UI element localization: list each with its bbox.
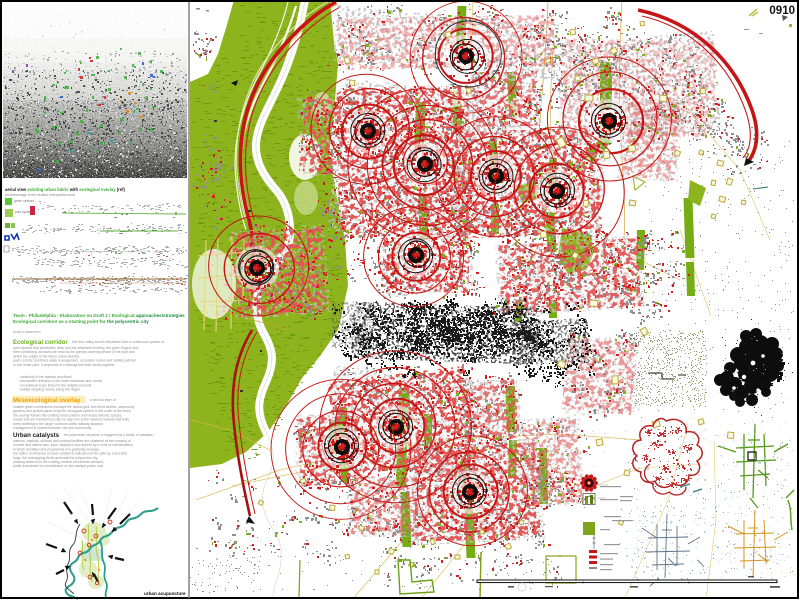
svg-text:aerial view existing urban fab: aerial view existing urban fabric with e… xyxy=(5,187,125,192)
svg-text:photomontage of the studied me: photomontage of the studied metropolitan… xyxy=(5,193,75,197)
svg-text:Team - Philadelphia - Elaborat: Team - Philadelphia - Elaboration on Dra… xyxy=(13,313,185,318)
svg-text:0910: 0910 xyxy=(769,5,795,17)
svg-text:the river valley and its tribu: the river valley and its tributaries for… xyxy=(72,340,164,344)
svg-text:park system: park system xyxy=(15,210,33,214)
svg-text:Ecological corridors as a star: Ecological corridors as a starting point… xyxy=(13,319,149,324)
svg-text:Mesoecological overlay: Mesoecological overlay xyxy=(13,398,81,404)
svg-text:a second layer of: a second layer of xyxy=(90,398,116,402)
svg-text:urban acupuncture: urban acupuncture xyxy=(144,591,186,596)
svg-text:project statement: project statement xyxy=(13,330,41,334)
svg-text:green network: green network xyxy=(14,199,35,203)
svg-text:the polycentric structure is t: the polycentric structure is triggered b… xyxy=(64,433,154,437)
svg-text:Urban catalysts: Urban catalysts xyxy=(13,432,60,439)
